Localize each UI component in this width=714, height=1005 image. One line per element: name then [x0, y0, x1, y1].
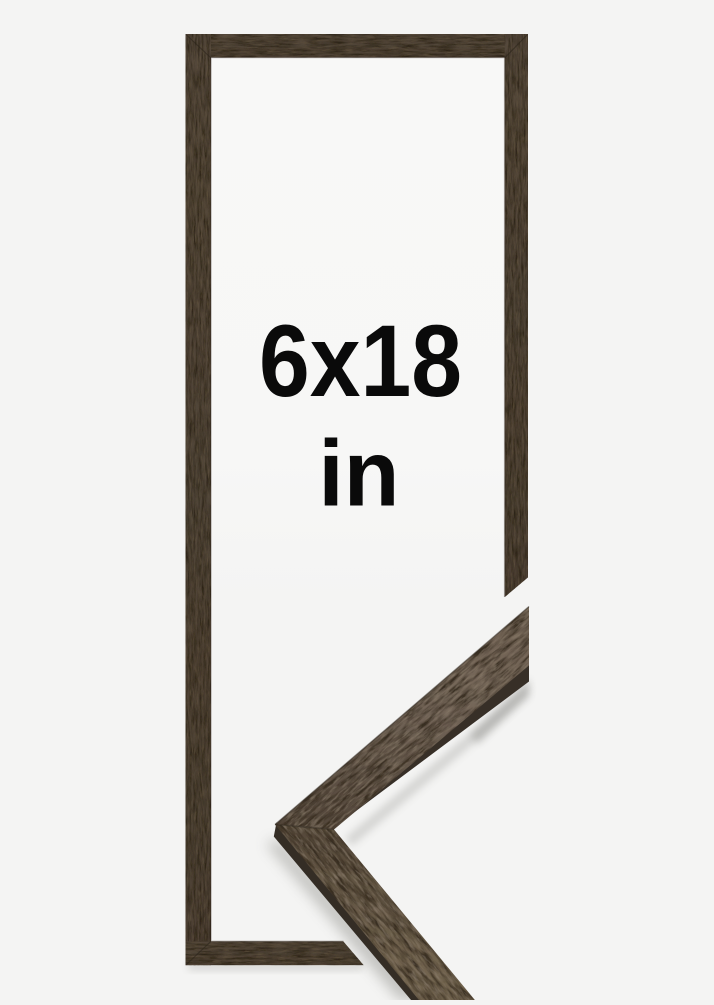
svg-text:in: in — [318, 421, 399, 526]
svg-text:6x18: 6x18 — [259, 304, 462, 418]
